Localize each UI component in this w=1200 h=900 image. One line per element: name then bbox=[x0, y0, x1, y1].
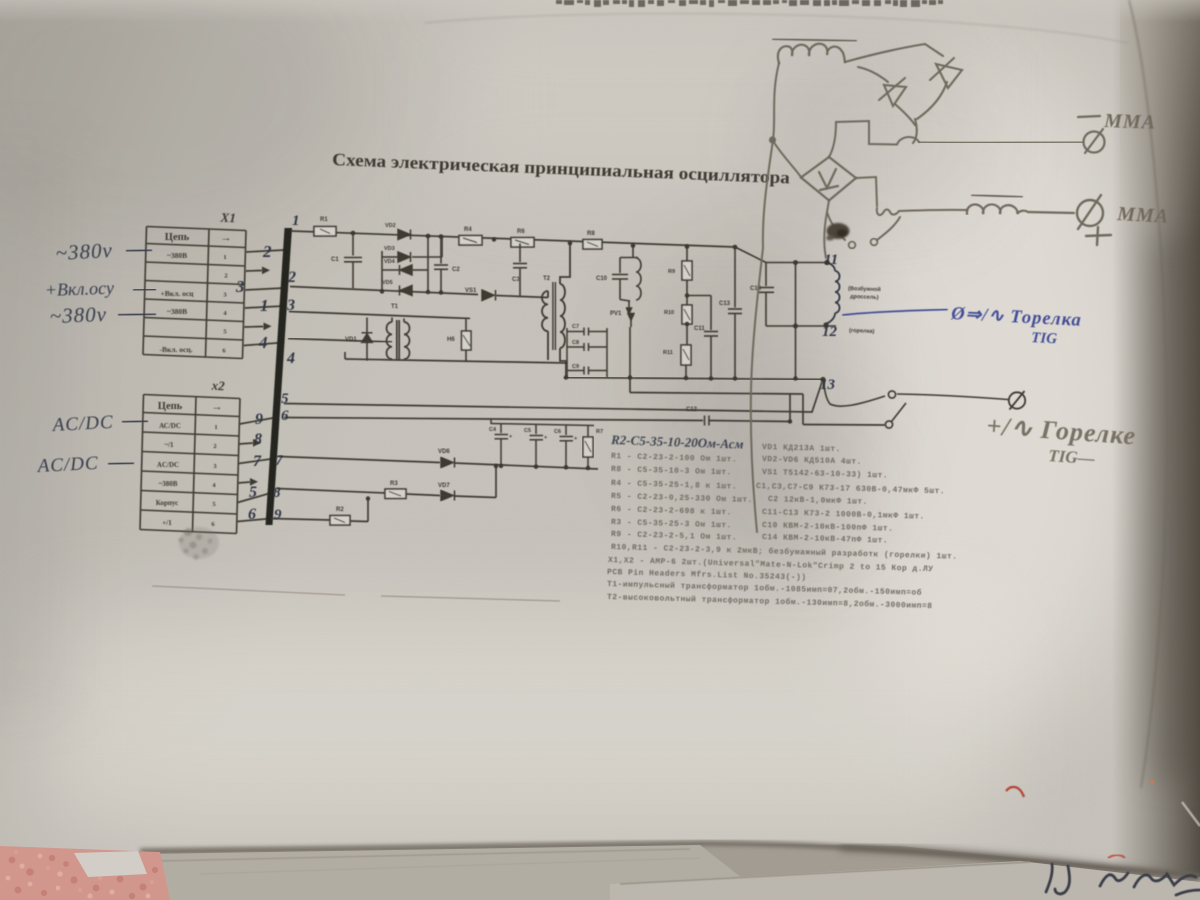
svg-text:С9: С9 bbox=[572, 364, 579, 370]
svg-text:VD1: VD1 bbox=[345, 337, 357, 343]
svg-text:~/1: ~/1 bbox=[164, 441, 174, 449]
svg-text:+Вкл. осц: +Вкл. осц bbox=[161, 289, 195, 298]
svg-text:+/∿ Горелке: +/∿ Горелке bbox=[986, 411, 1138, 450]
svg-text:6: 6 bbox=[211, 521, 215, 528]
svg-text:ТIG: ТIG bbox=[1031, 330, 1058, 347]
svg-text:ММА: ММА bbox=[1103, 110, 1157, 134]
svg-text:PCB Pin Headers Mfrs.List No.3: PCB Pin Headers Mfrs.List No.35243(-)) bbox=[607, 568, 807, 583]
svg-text:9: 9 bbox=[274, 507, 282, 523]
svg-text:С1,С3,С7-С9 К73-17 630В-0,47мк: С1,С3,С7-С9 К73-17 630В-0,47мкФ 5шт. bbox=[756, 482, 945, 496]
svg-text:Схема электрическая принципиал: Схема электрическая принципиальная осцил… bbox=[332, 149, 791, 187]
svg-text:13: 13 bbox=[820, 377, 836, 393]
svg-text:Т2: Т2 bbox=[543, 276, 551, 282]
svg-text:R11: R11 bbox=[663, 350, 673, 356]
svg-text:VD4: VD4 bbox=[384, 259, 396, 265]
svg-text:R4 - C5-35-25-1,8 к 1шт.: R4 - C5-35-25-1,8 к 1шт. bbox=[611, 479, 737, 492]
svg-text:-Вкл. осц.: -Вкл. осц. bbox=[159, 345, 192, 354]
svg-text:Корпус: Корпус bbox=[156, 499, 179, 507]
svg-text:С11: С11 bbox=[694, 326, 705, 332]
svg-text:9: 9 bbox=[255, 411, 263, 428]
svg-text:~380В: ~380В bbox=[159, 480, 178, 488]
svg-text:С7: С7 bbox=[572, 324, 579, 330]
svg-text:VS1: VS1 bbox=[465, 288, 477, 294]
svg-text:х2: х2 bbox=[210, 378, 225, 394]
svg-text:Цепь: Цепь bbox=[165, 232, 190, 243]
svg-text:R10,R11 - C2-23-2-3,9 к 2мкВ: R10,R11 - C2-23-2-3,9 к 2мкВ; безбумажны… bbox=[611, 543, 958, 562]
svg-text:С6: С6 bbox=[554, 429, 561, 435]
svg-text:R10: R10 bbox=[664, 310, 674, 316]
svg-text:C1: C1 bbox=[331, 257, 339, 263]
svg-text:1: 1 bbox=[292, 213, 300, 229]
svg-text:2: 2 bbox=[224, 273, 227, 280]
svg-text:VD6: VD6 bbox=[438, 449, 450, 455]
svg-text:AC/DC: AC/DC bbox=[50, 412, 114, 436]
svg-text:R1: R1 bbox=[320, 217, 328, 223]
svg-text:(Возбужной: (Возбужной bbox=[848, 285, 881, 293]
svg-text:R9: R9 bbox=[668, 269, 675, 275]
svg-text:1: 1 bbox=[260, 296, 269, 315]
svg-text:С12: С12 bbox=[686, 407, 698, 413]
svg-text:C2: C2 bbox=[452, 267, 460, 273]
svg-text:2: 2 bbox=[262, 242, 272, 261]
svg-text:R8: R8 bbox=[587, 231, 595, 237]
svg-text:~380v: ~380v bbox=[49, 302, 107, 328]
svg-text:С14: С14 bbox=[750, 286, 762, 292]
svg-text:С13: С13 bbox=[719, 301, 731, 307]
svg-text:PV1: PV1 bbox=[610, 311, 622, 317]
svg-text:С8: С8 bbox=[572, 340, 579, 346]
svg-text:VD5: VD5 bbox=[382, 280, 393, 286]
svg-text:~380В: ~380В bbox=[167, 251, 187, 260]
svg-text:11: 11 bbox=[824, 252, 838, 268]
svg-text:6: 6 bbox=[281, 408, 289, 424]
svg-text:R1 - C2-23-2-100 Ом 1шт.: R1 - C2-23-2-100 Ом 1шт. bbox=[611, 452, 737, 465]
svg-text:R3 - C5-35-25-3 Ом 1шт.: R3 - C5-35-25-3 Ом 1шт. bbox=[611, 518, 732, 530]
svg-text:ТIG—: ТIG— bbox=[1048, 446, 1095, 468]
svg-text:6: 6 bbox=[248, 506, 256, 523]
svg-text:VD3: VD3 bbox=[384, 246, 395, 252]
svg-text:Н6: Н6 bbox=[447, 337, 455, 343]
svg-text:С2 12кВ-1,0мкФ 1шт.: С2 12кВ-1,0мкФ 1шт. bbox=[768, 495, 868, 507]
svg-text:С4: С4 bbox=[489, 427, 497, 433]
svg-text:4: 4 bbox=[212, 482, 216, 489]
svg-text:Ø⇒/∿ Торелка: Ø⇒/∿ Торелка bbox=[950, 304, 1083, 331]
svg-text:R4: R4 bbox=[464, 227, 472, 233]
svg-text:3: 3 bbox=[235, 277, 245, 296]
svg-text:X1: X1 bbox=[219, 210, 236, 226]
svg-text:VD2: VD2 bbox=[385, 223, 396, 229]
svg-text:VS1 Т5142-63-10-33) 1шт.: VS1 Т5142-63-10-33) 1шт. bbox=[762, 468, 888, 481]
svg-text:R2: R2 bbox=[336, 507, 344, 513]
svg-text:3: 3 bbox=[286, 297, 295, 314]
svg-text:4: 4 bbox=[286, 350, 295, 367]
svg-text:AC/DC: AC/DC bbox=[35, 453, 99, 477]
svg-text:дроссель): дроссель) bbox=[850, 294, 879, 301]
svg-text:+: + bbox=[574, 436, 577, 442]
svg-text:1: 1 bbox=[223, 254, 226, 261]
svg-text:6: 6 bbox=[222, 348, 226, 355]
svg-text:+/1: +/1 bbox=[162, 519, 172, 527]
svg-text:2: 2 bbox=[213, 443, 216, 450]
svg-text:AC/DC: AC/DC bbox=[157, 461, 179, 469]
svg-text:(горелка): (горелка) bbox=[849, 328, 875, 335]
svg-text:ММА: ММА bbox=[1116, 203, 1170, 228]
svg-text:C3: C3 bbox=[512, 277, 520, 283]
svg-text:2: 2 bbox=[287, 269, 296, 286]
svg-text:R6: R6 bbox=[517, 229, 525, 235]
svg-text:R6 - C2-23-2-698 к 1шт.: R6 - C2-23-2-698 к 1шт. bbox=[611, 505, 732, 517]
svg-text:R2-С5-35-10-20Ом-Асм: R2-С5-35-10-20Ом-Асм bbox=[610, 432, 744, 452]
svg-text:→: → bbox=[221, 232, 232, 244]
svg-text:→: → bbox=[212, 401, 223, 413]
svg-text:3: 3 bbox=[213, 463, 217, 470]
svg-text:VD1 КД213А 1шт.: VD1 КД213А 1шт. bbox=[762, 443, 841, 454]
svg-text:Цепь: Цепь bbox=[158, 401, 183, 412]
svg-text:4: 4 bbox=[223, 310, 227, 317]
svg-text:R3: R3 bbox=[390, 481, 398, 487]
svg-text:8: 8 bbox=[254, 431, 262, 448]
svg-text:+: + bbox=[509, 434, 512, 440]
svg-text:С10 КВМ-2-10кВ-100пФ 1шт.: С10 КВМ-2-10кВ-100пФ 1шт. bbox=[762, 521, 893, 534]
svg-text:R8 - C5-35-10-3 Ом 1шт.: R8 - C5-35-10-3 Ом 1шт. bbox=[611, 465, 732, 477]
svg-text:7: 7 bbox=[253, 453, 262, 470]
svg-text:С5: С5 bbox=[524, 428, 531, 434]
svg-text:С11-С13 К73-2 1000В-0,1мкФ 1шт: С11-С13 К73-2 1000В-0,1мкФ 1шт. bbox=[762, 508, 925, 522]
svg-text:+Вкл.осу: +Вкл.осу bbox=[44, 278, 114, 300]
svg-text:Х1,Х2 - АМР-6 2шт.(Universal": Х1,Х2 - АМР-6 2шт.(Universal"Mate-N-Lok"… bbox=[608, 556, 934, 574]
svg-text:R7: R7 bbox=[596, 429, 603, 435]
svg-text:5: 5 bbox=[223, 329, 227, 336]
svg-text:Т2-высоковольтный трансформато: Т2-высоковольтный трансформатор 1обм.-13… bbox=[607, 593, 933, 611]
svg-text:4: 4 bbox=[258, 333, 268, 352]
svg-text:VD2-VD6 КД510А 4шт.: VD2-VD6 КД510А 4шт. bbox=[762, 455, 862, 467]
svg-text:VD7: VD7 bbox=[438, 483, 450, 489]
svg-text:АС/DC: АС/DC bbox=[159, 422, 181, 430]
svg-text:5: 5 bbox=[281, 391, 289, 407]
svg-text:Т1-импульсный трансформатор 1о: Т1-импульсный трансформатор 1обм.-1085им… bbox=[607, 580, 922, 598]
svg-text:8: 8 bbox=[273, 485, 281, 501]
svg-text:С14 КВМ-2-10кВ-47пФ 1шт.: С14 КВМ-2-10кВ-47пФ 1шт. bbox=[762, 533, 888, 546]
svg-text:+: + bbox=[544, 435, 547, 441]
svg-text:3: 3 bbox=[223, 292, 227, 299]
svg-text:Т1: Т1 bbox=[391, 304, 399, 310]
svg-text:~380В: ~380В bbox=[167, 307, 187, 316]
svg-text:R9 - C2-23-2-5,1 Ом 1шт.: R9 - C2-23-2-5,1 Ом 1шт. bbox=[611, 530, 737, 543]
svg-text:С10: С10 bbox=[596, 276, 608, 282]
svg-text:12: 12 bbox=[822, 324, 838, 340]
svg-text:1: 1 bbox=[214, 424, 217, 431]
svg-text:7: 7 bbox=[275, 453, 283, 469]
svg-text:5: 5 bbox=[249, 484, 257, 501]
svg-text:5: 5 bbox=[212, 501, 216, 508]
svg-text:R5 - C2-23-0,25-330 Ом 1шт.: R5 - C2-23-0,25-330 Ом 1шт. bbox=[611, 492, 753, 505]
svg-text:~380v: ~380v bbox=[55, 238, 113, 265]
